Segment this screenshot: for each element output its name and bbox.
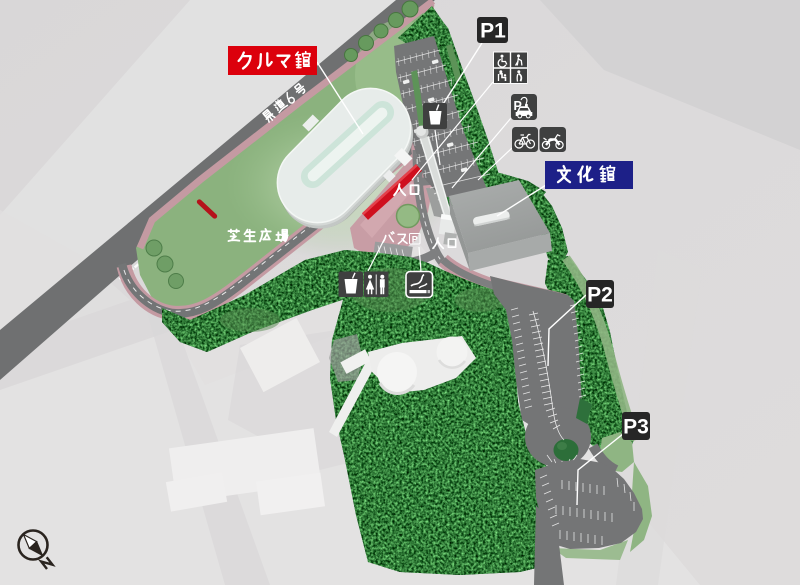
svg-text:P: P (412, 234, 418, 244)
svg-text:P2: P2 (587, 284, 613, 307)
svg-text:P1: P1 (480, 20, 506, 43)
svg-text:P3: P3 (623, 416, 649, 439)
